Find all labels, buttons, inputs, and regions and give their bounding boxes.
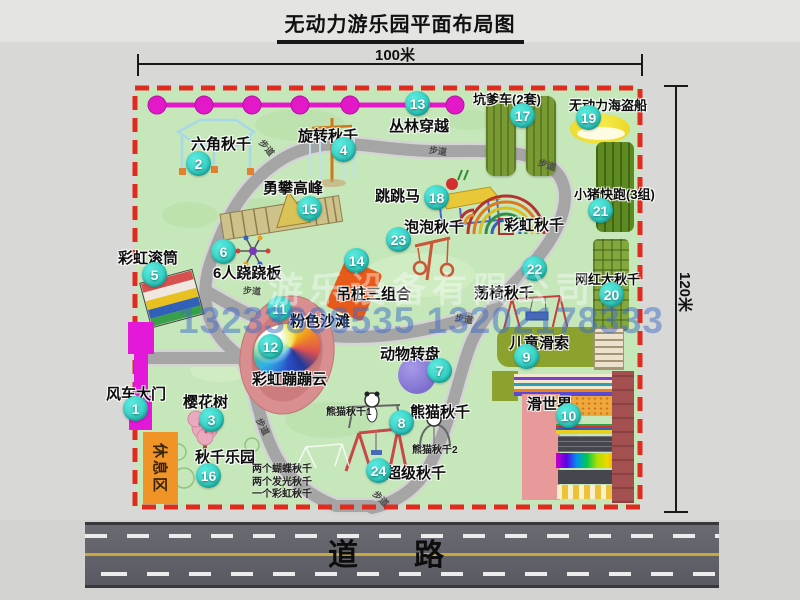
slide-world-gray-slide-1 [558, 436, 618, 452]
swing-park-note-3: 一个彩虹秋千 [252, 489, 312, 502]
label-jumping-horse: 跳跳马 [375, 185, 420, 206]
badge-3: 3 [199, 407, 224, 432]
badge-17: 17 [510, 103, 535, 128]
badge-24: 24 [366, 458, 391, 483]
badge-16: 16 [196, 463, 221, 488]
badge-23: 23 [386, 227, 411, 252]
rest-area: 休息区 [143, 432, 178, 504]
slide-world-wave-slide [557, 485, 618, 499]
rest-area-label: 休息区 [150, 442, 171, 493]
label-panda-swing-1: 熊猫秋千1 [326, 403, 372, 418]
badge-9: 9 [514, 344, 539, 369]
label-rainbow-swing: 彩虹秋千 [504, 214, 564, 235]
slide-world-gray-slide-2 [558, 470, 618, 484]
badge-2: 2 [186, 151, 211, 176]
slide-world-rainbow-slide [556, 453, 618, 468]
label-climbing-peak: 勇攀高峰 [263, 177, 323, 198]
label-pig-run: 小猪快跑(3组) [574, 184, 655, 203]
badge-13: 13 [405, 91, 430, 116]
swing-park-notes: 两个蝴蝶秋千 两个发光秋千 一个彩虹秋千 [252, 464, 312, 502]
badge-15: 15 [297, 196, 322, 221]
swing-park-note-1: 两个蝴蝶秋千 [252, 464, 312, 477]
badge-19: 19 [576, 105, 601, 130]
badge-4: 4 [331, 137, 356, 162]
dimension-height-label: 120米 [675, 272, 696, 312]
label-panda-swing-2: 熊猫秋千2 [412, 441, 458, 456]
page-title: 无动力游乐园平面布局图 [0, 8, 800, 44]
badge-7: 7 [427, 358, 452, 383]
label-panda-swing: 熊猫秋千 [410, 401, 470, 422]
park-plan-canvas: 无动力游乐园平面布局图 [0, 0, 800, 600]
dimension-width-label: 100米 [340, 44, 450, 65]
badge-1: 1 [123, 396, 148, 421]
watermark-phone: 13233806535 13202178333 [178, 300, 648, 342]
badge-18: 18 [424, 185, 449, 210]
badge-8: 8 [389, 410, 414, 435]
label-super-swing: 超级秋千 [386, 462, 446, 483]
label-bounce-cloud: 彩虹蹦蹦云 [252, 368, 327, 389]
badge-6: 6 [211, 239, 236, 264]
swing-park-note-2: 两个发光秋千 [252, 477, 312, 490]
slide-world-side-wall [612, 371, 634, 503]
walkway-label-2: 步道 [428, 143, 448, 158]
walkway-label-4: 步道 [243, 283, 262, 297]
label-bubble-swing: 泡泡秋千 [404, 216, 464, 237]
page-title-text: 无动力游乐园平面布局图 [277, 8, 524, 44]
badge-10: 10 [556, 403, 581, 428]
badge-21: 21 [588, 198, 613, 223]
road-label: 道路 [328, 530, 500, 574]
windmill-gate-top [128, 322, 154, 354]
label-jungle-crossing: 丛林穿越 [389, 115, 449, 136]
badge-5: 5 [142, 262, 167, 287]
